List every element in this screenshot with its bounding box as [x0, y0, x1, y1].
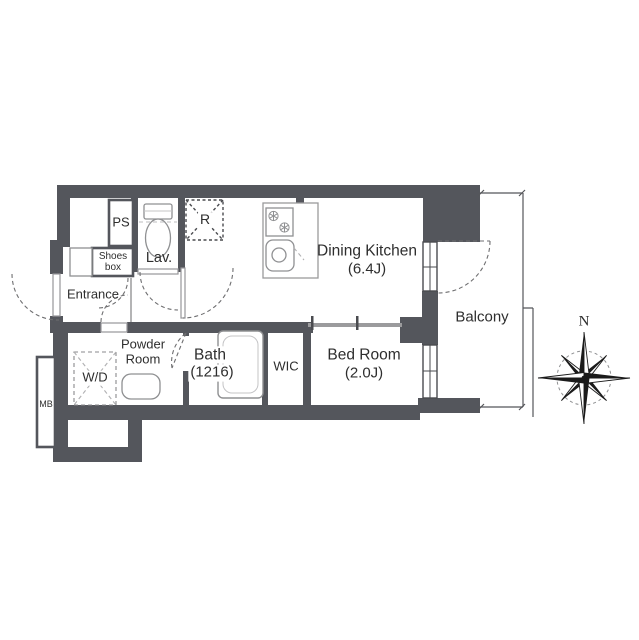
floorplan: PS Shoesbox Lav. R Dining Kitchen (6.4J)…	[0, 0, 639, 640]
compass-rose	[538, 332, 630, 424]
dining-kitchen-size: (6.4J)	[348, 262, 386, 279]
washer-dryer-label: W/D	[80, 371, 109, 386]
hall-door-swing	[183, 268, 233, 318]
lavatory-door-swing	[140, 272, 178, 310]
lavatory-label: Lav.	[146, 250, 172, 266]
bedroom-size: (2.0J)	[345, 366, 383, 383]
plan-graphics	[0, 0, 639, 640]
wic-label: WIC	[273, 360, 298, 375]
washbasin-icon	[122, 374, 160, 399]
entrance-closet-box	[70, 248, 92, 276]
entrance-door-leaf	[53, 274, 60, 316]
kitchen-counter	[263, 203, 318, 278]
powder-room-label: PowderRoom	[121, 337, 165, 366]
bath-door-swing	[172, 333, 186, 368]
balcony-label: Balcony	[455, 310, 508, 327]
kitchen-balcony-window	[423, 242, 437, 291]
meter-box-label: MB	[39, 399, 53, 409]
ps-label: PS	[112, 216, 129, 231]
hall-door-leaf	[181, 268, 185, 318]
balcony-boundary-lines	[478, 190, 533, 417]
bath-door-leaf	[172, 333, 186, 368]
compass-north-label: N	[579, 314, 590, 331]
refrigerator-label: R	[198, 212, 212, 228]
powder-room-threshold	[101, 323, 127, 332]
bedroom-sliding-door	[308, 316, 402, 330]
lavatory-threshold	[138, 269, 178, 274]
bedroom-name: Bed Room	[327, 346, 400, 363]
shoes-box-label: Shoesbox	[99, 251, 127, 273]
entrance-door-swing	[12, 274, 59, 320]
balcony-door-swing	[438, 241, 490, 293]
bath-size: (1216)	[188, 365, 235, 382]
dining-kitchen-name: Dining Kitchen	[317, 242, 417, 259]
bedroom-balcony-window	[423, 345, 437, 398]
bath-name: Bath	[192, 346, 228, 363]
entrance-label: Entrance	[67, 288, 119, 303]
